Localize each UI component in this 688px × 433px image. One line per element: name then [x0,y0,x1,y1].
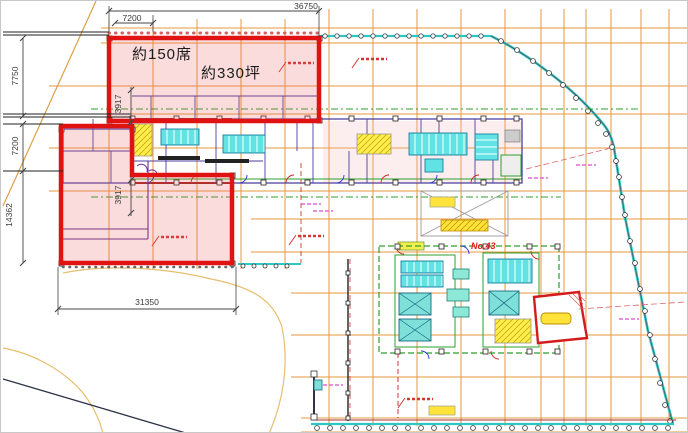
dimension-core-lower: 3917 [113,171,123,219]
dimension-left-lower: 14362 [4,191,14,239]
dimension-left-middle: 7200 [10,122,20,170]
dimension-bottom-width: 31350 [123,297,171,307]
plan-linework [1,1,688,433]
building-number-label: No.43 [471,241,496,251]
dimension-top-bay: 7200 [108,13,156,23]
zone-label-seats: 約150席 [132,43,192,64]
dimension-top-total: 36750 [278,1,334,11]
dimension-left-upper: 7750 [10,52,20,100]
floor-plan-canvas: 36750 7200 7750 7200 14362 3917 3917 313… [0,0,688,433]
dimension-core-upper: 3917 [113,80,123,128]
highlight-zones [61,33,319,267]
zone-label-area: 約330坪 [201,62,261,83]
